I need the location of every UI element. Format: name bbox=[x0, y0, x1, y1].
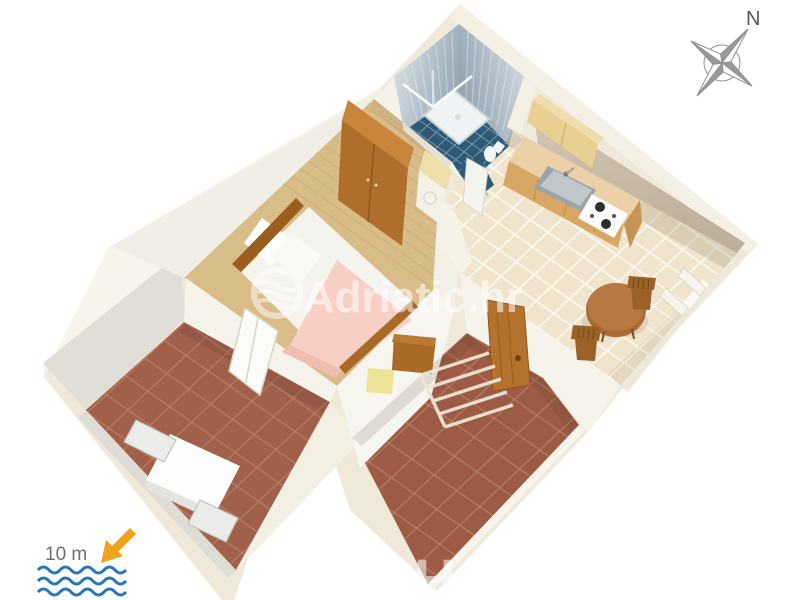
svg-text:Adriatic.hr: Adriatic.hr bbox=[303, 273, 523, 322]
svg-text:HOLIDAY: HOLIDAY bbox=[414, 548, 670, 600]
svg-text:N: N bbox=[746, 8, 760, 30]
svg-text:10 m: 10 m bbox=[45, 544, 87, 565]
